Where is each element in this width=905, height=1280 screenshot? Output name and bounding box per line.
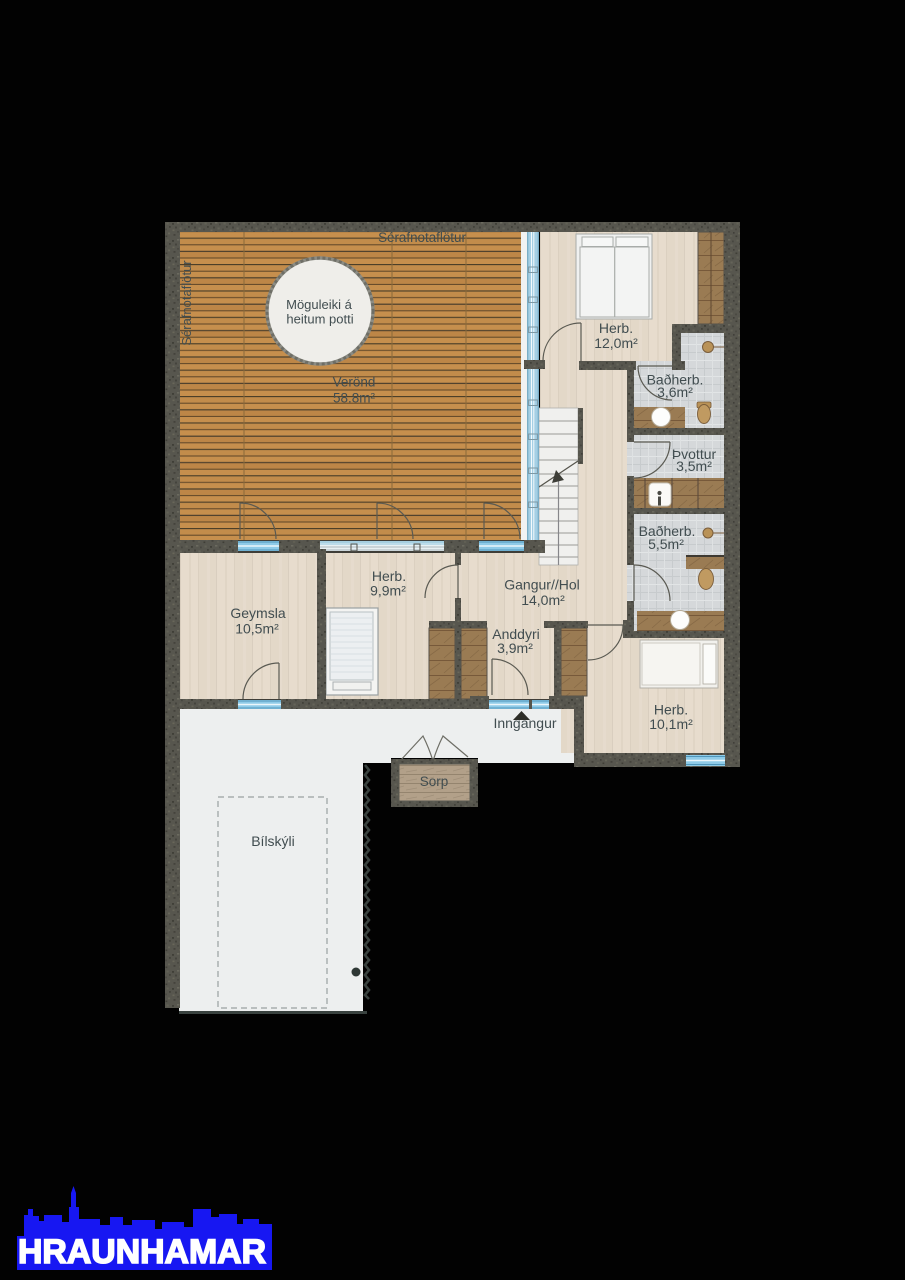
svg-text:10,5m²: 10,5m²	[235, 621, 279, 637]
svg-text:Verönd: Verönd	[333, 375, 376, 390]
svg-text:10,1m²: 10,1m²	[649, 716, 693, 732]
svg-text:Herb.: Herb.	[599, 320, 633, 336]
svg-text:Bílskýli: Bílskýli	[251, 833, 295, 849]
svg-text:heitum potti: heitum potti	[286, 312, 353, 327]
svg-text:Gangur//Hol: Gangur//Hol	[504, 577, 579, 593]
svg-text:Sorp: Sorp	[420, 774, 449, 789]
svg-text:Möguleiki á: Möguleiki á	[286, 297, 353, 312]
svg-text:3,9m²: 3,9m²	[497, 640, 533, 656]
svg-text:12,0m²: 12,0m²	[594, 335, 638, 351]
svg-text:9,9m²: 9,9m²	[370, 583, 406, 599]
svg-text:3,6m²: 3,6m²	[657, 384, 693, 400]
svg-text:Geymsla: Geymsla	[230, 605, 285, 621]
svg-text:58.8m²: 58.8m²	[333, 391, 376, 406]
svg-text:Sérafnotaflötur: Sérafnotaflötur	[179, 260, 194, 346]
svg-text:Inngangur: Inngangur	[493, 715, 556, 731]
svg-text:HRAUNHAMAR: HRAUNHAMAR	[18, 1233, 266, 1271]
svg-text:3,5m²: 3,5m²	[676, 458, 712, 474]
svg-text:14,0m²: 14,0m²	[521, 592, 565, 608]
svg-text:5,5m²: 5,5m²	[648, 536, 684, 552]
svg-text:Sérafnotaflötur: Sérafnotaflötur	[378, 230, 466, 245]
